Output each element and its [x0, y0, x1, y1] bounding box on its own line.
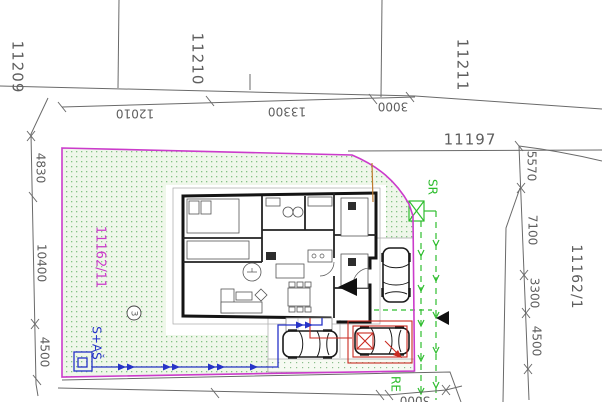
parcel-label-11197: 11197: [444, 131, 497, 149]
car-carport: [355, 328, 409, 355]
dining-table-chairs: [288, 282, 311, 312]
round-table: [243, 263, 261, 281]
dim-left-4830: 4830: [34, 153, 48, 184]
point-marker-3: 3: [127, 306, 141, 320]
dim-top-12010: 12010: [116, 107, 154, 121]
dim-top-3000: 3000: [378, 100, 409, 114]
annotation-sr: SR: [426, 179, 440, 195]
dim-right-5570: 5570: [525, 151, 539, 182]
parcel-label-11162-1: 11162/1: [568, 244, 584, 309]
parcel-label-11210: 11210: [189, 33, 207, 86]
site-plan-page: 11209 11210 11211 11197 11162/1 11162/11…: [0, 0, 602, 402]
bed-mid-left: [187, 241, 249, 259]
dim-left-4500: 4500: [38, 337, 52, 368]
dim-right-3300: 3300: [528, 278, 542, 309]
annotation-re: RE: [389, 376, 403, 392]
parcel-label-11162-11: 11162/11: [93, 226, 108, 288]
site-plan-drawing: 11209 11210 11211 11197 11162/1 11162/11…: [0, 0, 602, 402]
parcel-label-11211: 11211: [454, 39, 472, 92]
dim-top-13300: 13300: [268, 105, 306, 119]
paved-strip: [268, 359, 414, 372]
dim-bottom-3000: 3000: [400, 394, 431, 402]
point-marker-3-label: 3: [129, 311, 139, 317]
bed-top-right: [341, 198, 368, 236]
car-parked-right: [383, 248, 410, 302]
dim-right-4500: 4500: [530, 326, 544, 357]
annotation-s-as: S+AŠ: [90, 326, 105, 360]
parcel-label-11209: 11209: [9, 41, 27, 94]
dim-left-10400: 10400: [35, 244, 49, 282]
dim-right-7100: 7100: [526, 215, 540, 246]
bed-top-left: [187, 199, 239, 233]
